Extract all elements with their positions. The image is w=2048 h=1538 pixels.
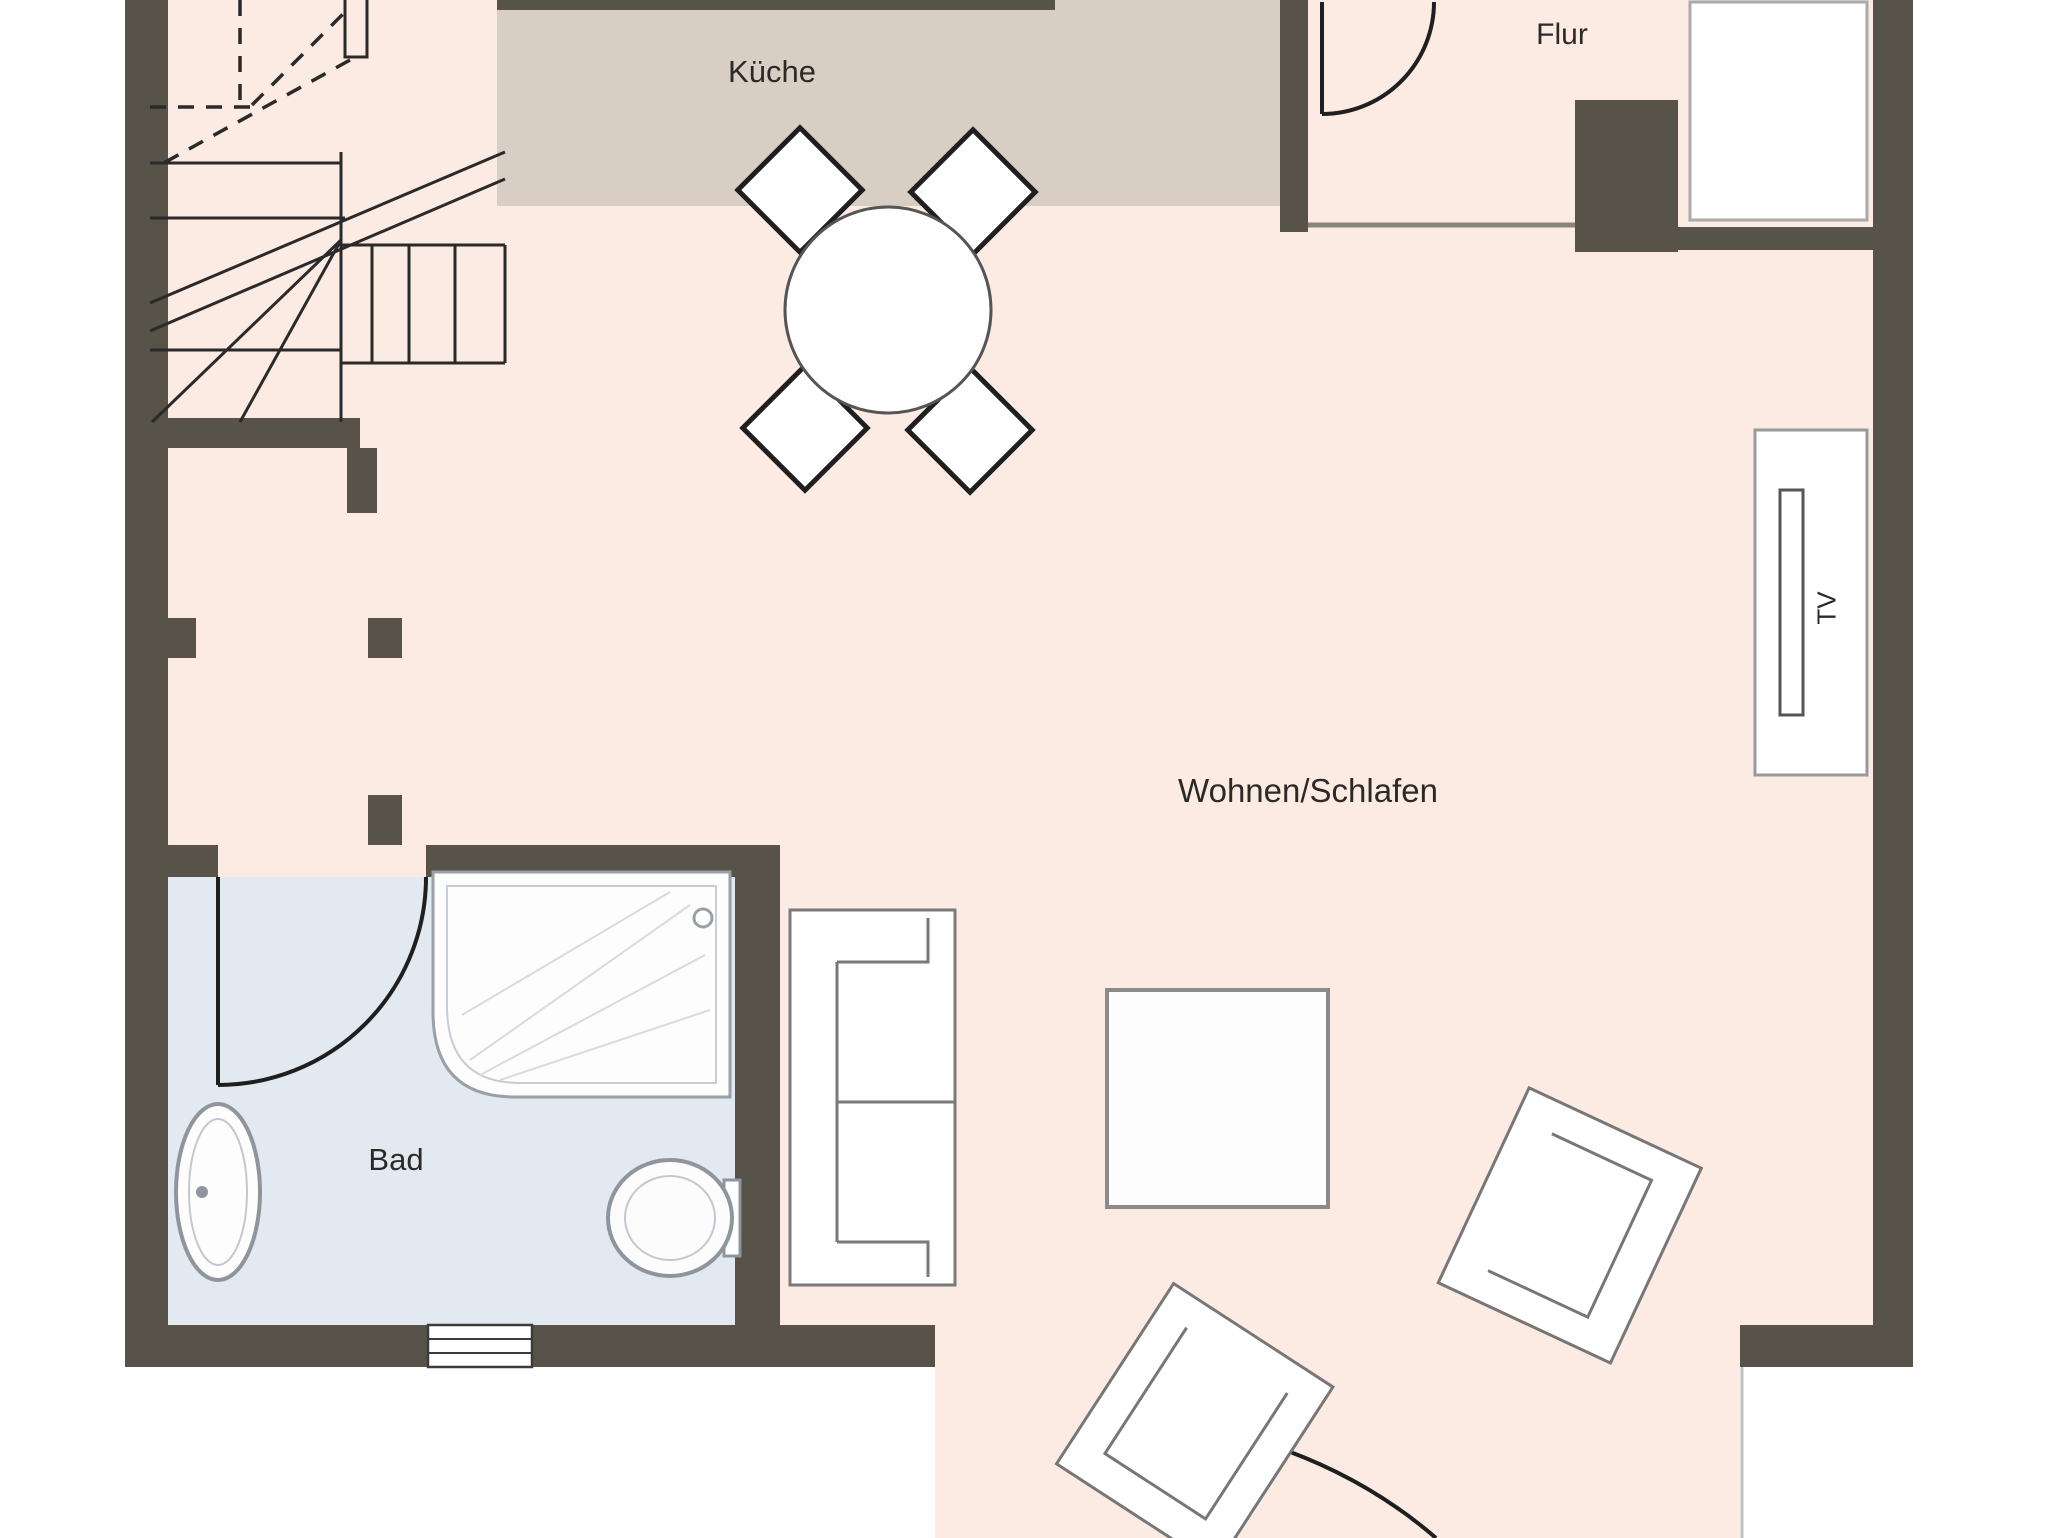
wall-stair-stub [347,448,377,513]
living-label: Wohnen/Schlafen [1178,772,1438,810]
wall-kitchen-hallway [1280,0,1308,232]
bathroom-label: Bad [368,1142,423,1178]
coffee-table [1107,990,1328,1207]
wall-left-outer [125,0,168,1367]
shower-drain [694,909,712,927]
wall-hallway-bottom [1678,227,1873,250]
kitchen-floor [497,0,1280,206]
wall-bath-top-a [168,845,218,877]
wall-bottom-right [1740,1325,1873,1367]
sofa [790,910,955,1285]
floor-plan-drawing [0,0,2048,1538]
wall-right-outer [1873,0,1913,1367]
bathroom-window [428,1325,532,1367]
wall-kitchen-top [497,0,1055,10]
sink-faucet [196,1186,208,1198]
wardrobe [1690,2,1867,220]
tv-screen [1780,490,1803,715]
living-floor-extension [935,1367,1740,1538]
wall-hallway-pier [1575,100,1678,252]
hallway-label: Flur [1536,18,1588,52]
wall-bottom-left-b [532,1325,935,1367]
wall-opening-stub-left [168,618,196,658]
floor-plan: Küche Flur Wohnen/Schlafen Bad TV [0,0,2048,1538]
kitchen-label: Küche [728,54,816,90]
tv-label: TV [1812,591,1843,624]
sink [176,1104,260,1280]
wall-bath-stub [368,795,402,845]
wall-opening-pier [368,618,402,658]
wall-bottom-left-a [125,1325,428,1367]
dining-table [785,207,991,413]
shower [433,872,730,1097]
wall-under-stairs [150,418,360,448]
wall-bath-right [735,845,780,1367]
